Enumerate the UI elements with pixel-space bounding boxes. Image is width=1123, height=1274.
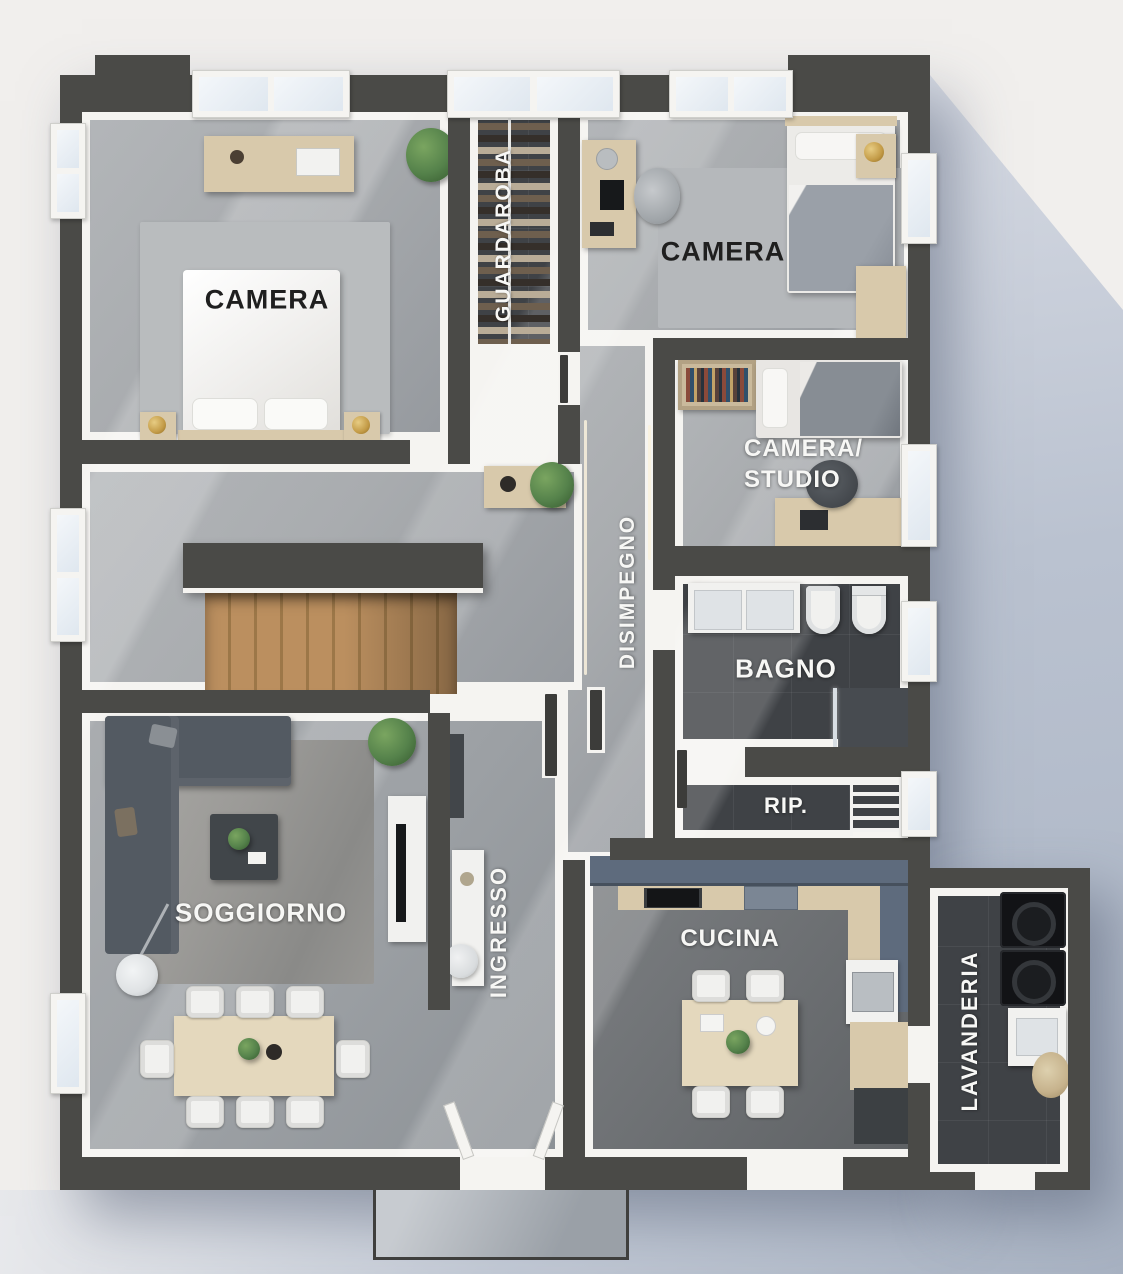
chair (746, 1086, 784, 1118)
wall-segment (908, 833, 930, 1026)
window (901, 153, 937, 244)
wall-segment (1035, 1172, 1090, 1190)
wall-segment (1068, 868, 1090, 1190)
laptop (800, 510, 828, 530)
chair (692, 970, 730, 1002)
decor-vase (230, 150, 244, 164)
chair (236, 986, 274, 1018)
washer-door (1012, 902, 1056, 946)
bed-headboard (785, 116, 897, 126)
door-threshold (747, 1157, 843, 1190)
cooktop (644, 888, 702, 908)
decor-bowl (500, 476, 516, 492)
window (669, 70, 793, 118)
window-pane (199, 77, 268, 111)
place-setting (266, 1044, 282, 1060)
window-pane (57, 174, 79, 212)
window-pane (908, 451, 930, 540)
wall-segment (82, 440, 410, 464)
stair-canopy (183, 543, 483, 590)
coat-rack-panel (450, 734, 464, 818)
washing-machine (1000, 892, 1066, 948)
chair (186, 986, 224, 1018)
window (50, 508, 86, 642)
sink-basin (746, 590, 794, 630)
decor-tray (296, 148, 340, 176)
french-door-threshold (460, 1157, 545, 1190)
chair (186, 1096, 224, 1128)
room-label-camera-left: CAMERA (205, 285, 330, 316)
wall-segment (448, 75, 470, 464)
wall-segment (428, 713, 450, 1010)
window (192, 70, 350, 118)
decor-object (460, 872, 474, 886)
door-opening (410, 440, 448, 464)
room-label-soggiorno: SOGGIORNO (175, 898, 347, 929)
wall-segment (908, 75, 930, 155)
room-label-disimpegno: DISIMPEGNO (616, 515, 640, 669)
sofa-left-section (105, 716, 179, 954)
kitchen-base-cabinet (854, 1088, 908, 1144)
room-label-cucina: CUCINA (680, 925, 779, 953)
window-pane (57, 515, 79, 572)
keyboard (590, 222, 614, 236)
wall-segment (60, 75, 82, 125)
room-label-line: STUDIO (744, 464, 863, 495)
wall-segment (653, 777, 675, 838)
window-pane (57, 578, 79, 635)
canopy-edge (183, 588, 483, 593)
wall-segment (653, 650, 675, 747)
wall-segment (563, 860, 585, 1157)
door-leaf (545, 694, 557, 776)
chair (286, 986, 324, 1018)
wall-segment (788, 55, 930, 75)
wall-light-strip (584, 420, 587, 675)
place-setting (756, 1016, 776, 1036)
room-label-lavanderia: LAVANDERIA (957, 951, 983, 1112)
window (447, 70, 620, 118)
kitchen-counter-low (850, 1022, 908, 1090)
table-centerpiece (238, 1038, 260, 1060)
potted-plant (530, 462, 574, 508)
bed-pillow (762, 368, 788, 428)
toilet-tank (852, 586, 886, 596)
door-opening (908, 1026, 930, 1083)
bidet (806, 586, 840, 634)
laundry-basin (1016, 1018, 1058, 1056)
decor-book (248, 852, 266, 864)
chair (746, 970, 784, 1002)
room-label-camera-studio: CAMERA/ STUDIO (744, 433, 863, 495)
wall-light-strip (648, 425, 651, 560)
room-label-line: CAMERA/ (744, 433, 863, 464)
door-leaf (590, 690, 602, 750)
room-label-guardaroba: GUARDAROBA (492, 148, 516, 322)
window (901, 444, 937, 547)
dried-plant (1032, 1052, 1070, 1098)
dryer-door (1012, 960, 1056, 1004)
wall-segment (930, 1172, 975, 1190)
arc-floor-lamp (116, 954, 158, 996)
potted-plant (368, 718, 416, 766)
wall-segment (545, 1157, 747, 1190)
chair (140, 1040, 174, 1078)
sink-basin (694, 590, 742, 630)
kitchen-sink-top (744, 886, 798, 910)
bed-blanket (800, 362, 900, 436)
window-pane (537, 77, 613, 111)
floor-plan: CAMERA GUARDAROBA CAMERA CAMERA/ STUDIO … (0, 0, 1123, 1274)
window-pane (57, 130, 79, 168)
storage-shelving (850, 780, 902, 836)
wall-segment (843, 1157, 930, 1190)
stair-shadow (205, 590, 457, 694)
room-label-ingresso: INGRESSO (486, 866, 512, 998)
wall-segment (60, 215, 82, 510)
door-threshold (975, 1172, 1035, 1190)
window-pane (908, 608, 930, 675)
door-opening (653, 590, 675, 650)
television (396, 824, 406, 922)
window (50, 123, 86, 219)
chair (286, 1096, 324, 1128)
wall-segment (95, 55, 190, 75)
shower-glass-panel (833, 688, 837, 747)
wall-segment (653, 747, 675, 777)
low-dresser (856, 266, 906, 338)
wall-segment (60, 1157, 460, 1190)
window (50, 993, 86, 1094)
window-pane (734, 77, 786, 111)
room-label-camera-right: CAMERA (661, 237, 786, 268)
window-pane (454, 77, 530, 111)
chair (236, 1096, 274, 1128)
window-pane (908, 160, 930, 237)
wall-segment (345, 75, 450, 112)
wall-segment (558, 405, 580, 464)
chair (336, 1040, 370, 1078)
chair (692, 1086, 730, 1118)
table-lamp (352, 416, 370, 434)
desk-lamp (596, 148, 618, 170)
window-pane (908, 778, 930, 830)
table-plant (228, 828, 250, 850)
wall-segment (60, 638, 82, 995)
table-centerpiece (726, 1030, 750, 1054)
window-pane (57, 1000, 79, 1087)
throw-pillow (114, 807, 138, 838)
bed-pillow (264, 398, 328, 430)
wall-segment (653, 338, 930, 360)
window (901, 601, 937, 682)
wall-segment (610, 838, 930, 860)
entrance-porch (373, 1183, 629, 1260)
door-leaf (677, 750, 687, 808)
wall-segment (615, 75, 672, 112)
wall-segment (653, 546, 930, 576)
table-lamp (148, 416, 166, 434)
steel-sink (852, 972, 894, 1012)
wall-segment (653, 360, 675, 576)
room-label-bagno: BAGNO (735, 654, 837, 685)
bed-pillow (192, 398, 258, 430)
wall-segment (653, 576, 675, 590)
window-pane (676, 77, 728, 111)
shower-area (838, 688, 908, 747)
wall-segment (82, 690, 430, 713)
book-spines (686, 368, 748, 402)
table-lamp (864, 142, 884, 162)
place-setting (700, 1014, 724, 1032)
tv-sideboard (388, 796, 426, 942)
room-label-rip: RIP. (764, 793, 808, 819)
computer-monitor (600, 180, 624, 210)
kitchen-upper-cabinets (590, 856, 908, 886)
door-leaf (560, 355, 568, 403)
window-pane (274, 77, 343, 111)
window (901, 771, 937, 837)
desk-chair (634, 168, 680, 224)
wall-segment (930, 868, 1090, 888)
dryer (1000, 950, 1066, 1006)
